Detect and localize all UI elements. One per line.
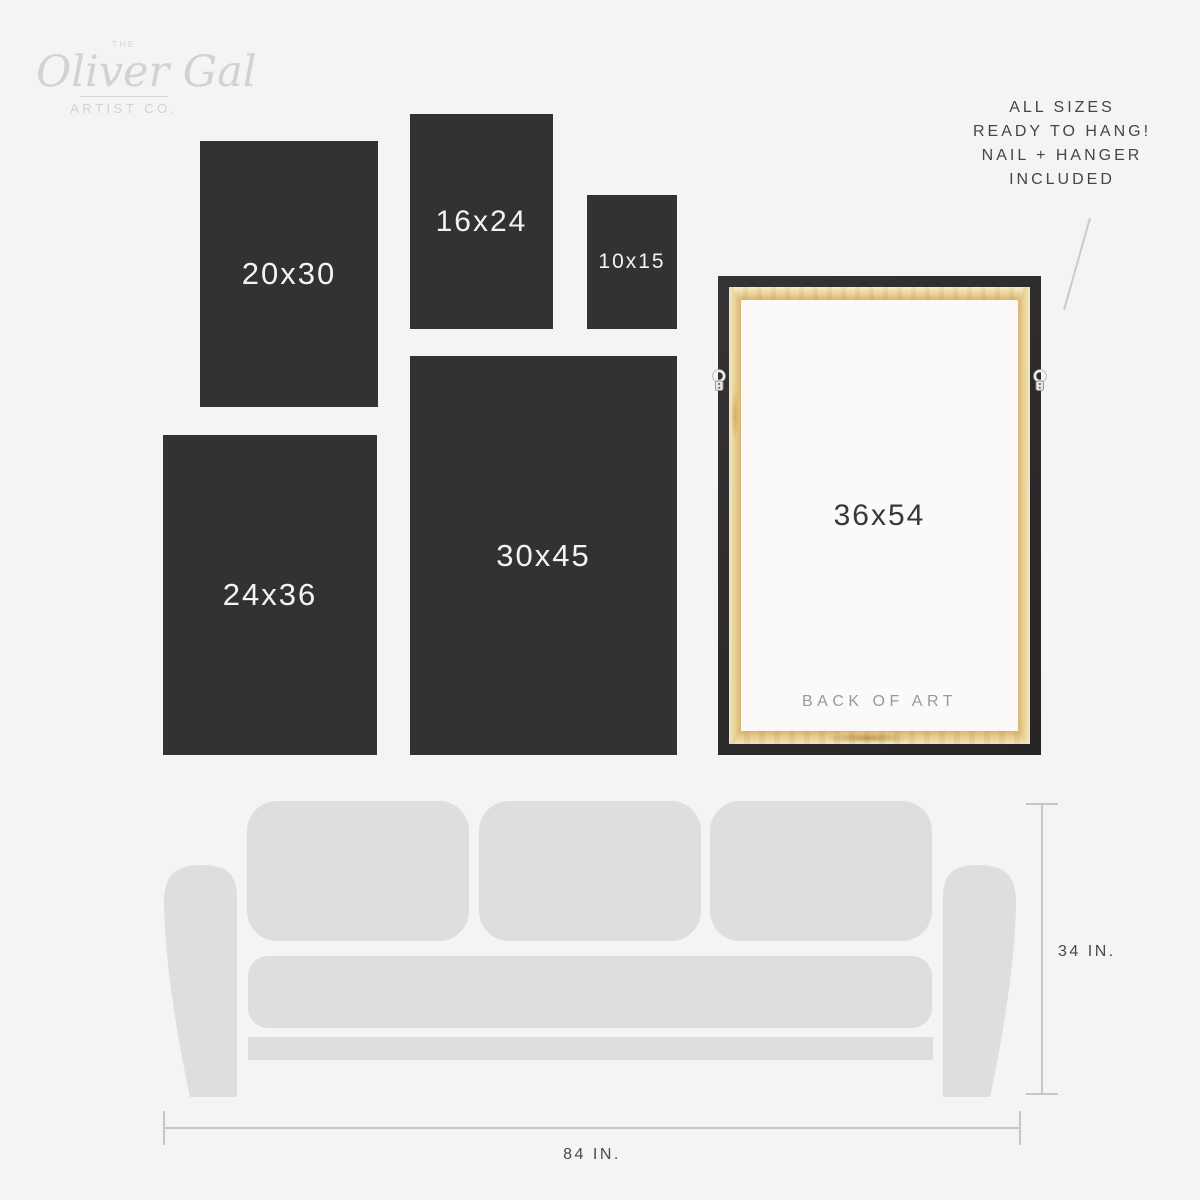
- stretcher-bar-top: [729, 287, 1030, 300]
- couch-armrest-right: [943, 865, 1016, 1097]
- size-label-20x30: 20x30: [242, 256, 336, 292]
- couch-back-cushion: [247, 801, 469, 941]
- brand-logo: THE Oliver Gal ARTIST CO.: [36, 40, 212, 116]
- width-dimension-cap-right: [1019, 1111, 1021, 1145]
- couch-height-label: 34 IN.: [1058, 943, 1116, 961]
- brand-suffix: ARTIST CO.: [36, 101, 212, 116]
- size-panel-20x30: 20x30: [200, 141, 378, 407]
- d-ring-hanger-icon: [1030, 368, 1048, 394]
- d-ring-hanger-icon: [711, 368, 729, 394]
- note-line-1: ALL SIZES: [952, 96, 1172, 120]
- width-dimension-cap-left: [163, 1111, 165, 1145]
- couch-armrest-left: [164, 865, 237, 1097]
- couch-silhouette: [160, 795, 1020, 1101]
- back-of-art-label: BACK OF ART: [718, 693, 1041, 711]
- height-dimension-line: [1041, 804, 1043, 1094]
- size-panel-24x36: 24x36: [163, 435, 377, 755]
- size-label-36x54: 36x54: [834, 499, 926, 533]
- note-line-2: READY TO HANG!: [952, 120, 1172, 144]
- ready-to-hang-note: ALL SIZES READY TO HANG! NAIL + HANGER I…: [952, 96, 1172, 192]
- stretcher-bar-left: [729, 287, 741, 744]
- size-label-10x15: 10x15: [598, 250, 665, 274]
- size-label-16x24: 16x24: [436, 205, 528, 239]
- frame-label-wrap: 36x54: [742, 300, 1017, 731]
- note-line-4: INCLUDED: [952, 168, 1172, 192]
- stretcher-bar-right: [1018, 287, 1030, 744]
- couch-seat-cushion: [248, 956, 932, 1028]
- size-panel-30x45: 30x45: [410, 356, 677, 755]
- size-panel-10x15: 10x15: [587, 195, 677, 329]
- size-panel-16x24: 16x24: [410, 114, 553, 329]
- size-guide-canvas: THE Oliver Gal ARTIST CO. ALL SIZES READ…: [0, 0, 1200, 1200]
- size-label-30x45: 30x45: [496, 538, 590, 574]
- height-dimension-cap-bottom: [1026, 1093, 1058, 1095]
- couch-width-label: 84 IN.: [163, 1146, 1021, 1164]
- width-dimension-line: [163, 1127, 1021, 1129]
- height-dimension-cap-top: [1026, 803, 1058, 805]
- note-line-3: NAIL + HANGER: [952, 144, 1172, 168]
- size-panel-36x54-frame-back: 36x54 BACK OF ART: [718, 276, 1041, 755]
- brand-name: Oliver Gal: [36, 49, 212, 95]
- note-pointer-line: [1054, 212, 1098, 316]
- couch-back-cushion: [710, 801, 932, 941]
- size-label-24x36: 24x36: [223, 577, 317, 613]
- couch-back-cushion: [479, 801, 701, 941]
- stretcher-bar-bottom: [729, 731, 1030, 744]
- couch-base: [248, 1037, 933, 1060]
